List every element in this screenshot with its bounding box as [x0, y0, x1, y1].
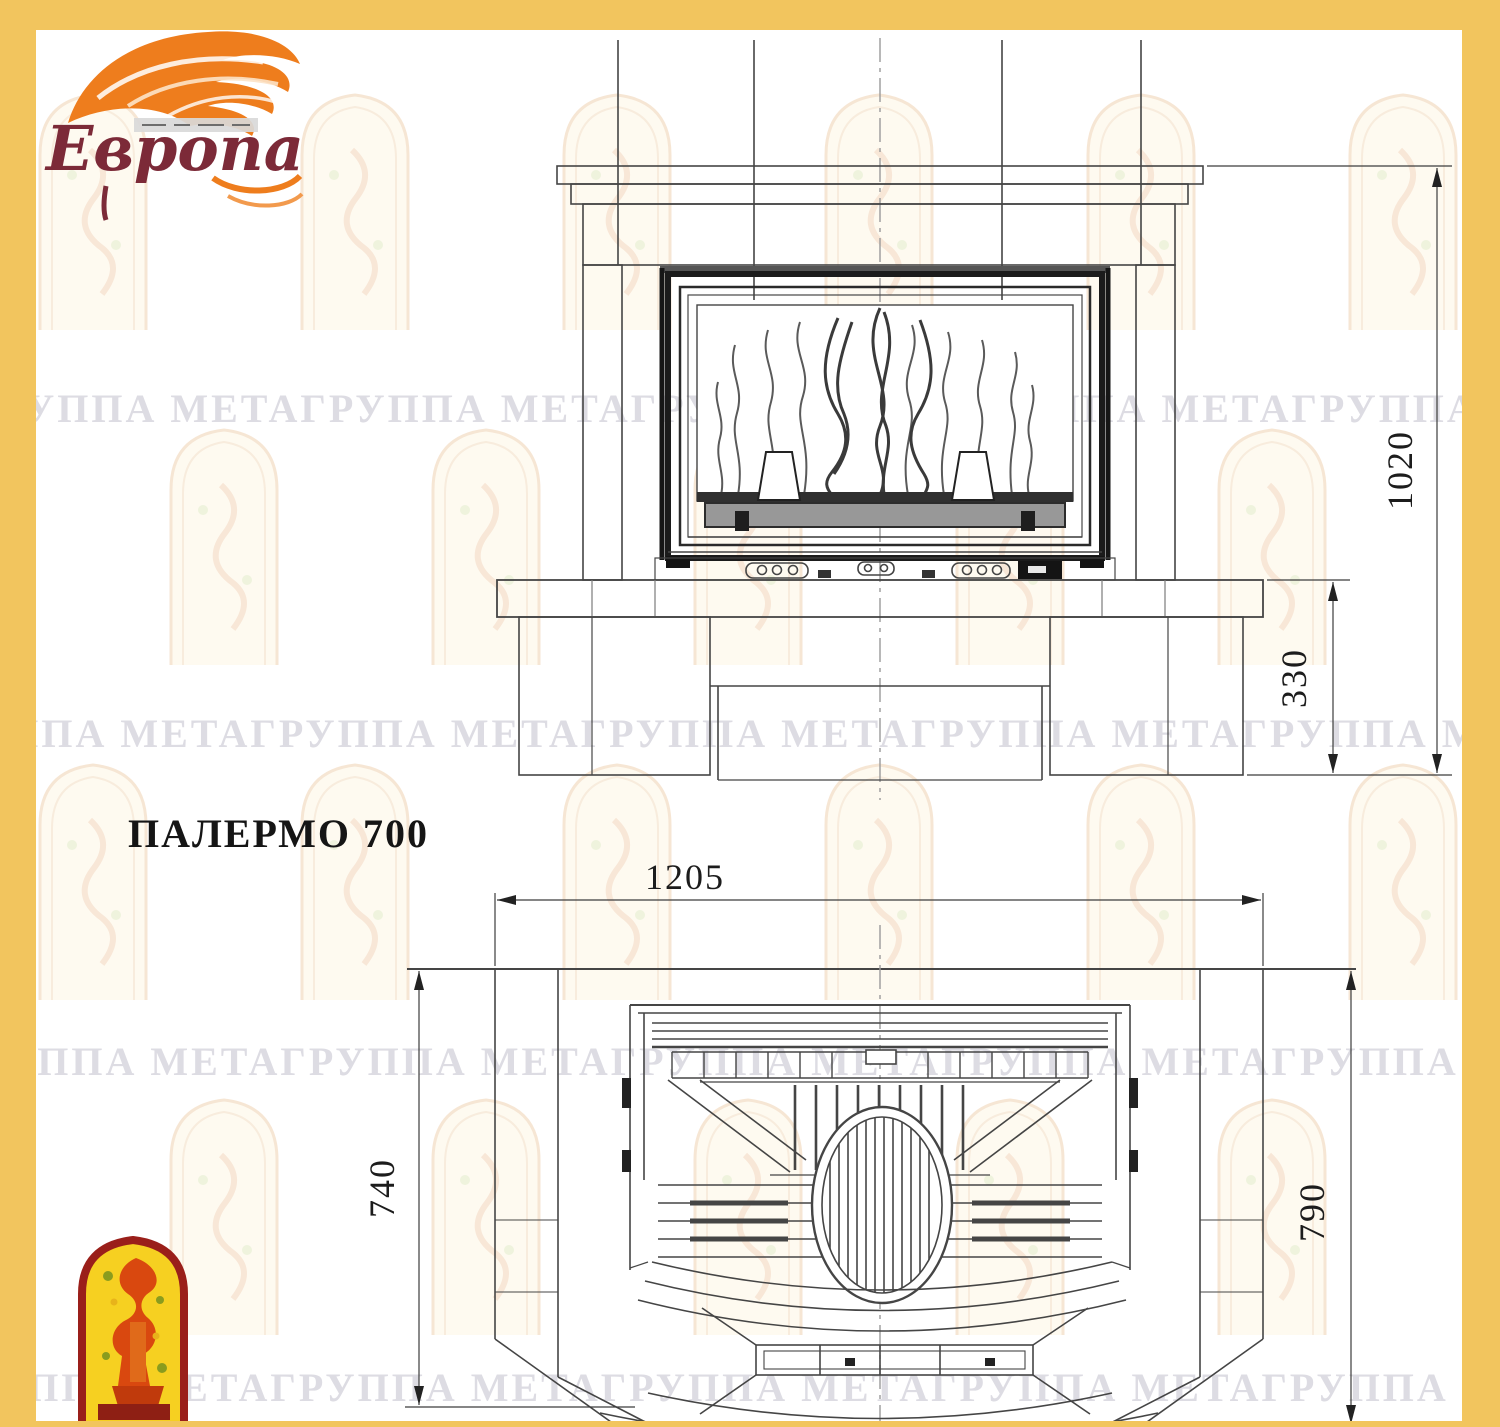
- front-elevation-view: 1020 330: [497, 38, 1452, 800]
- brand-descender: [104, 186, 106, 220]
- page-border-top: [0, 0, 1500, 30]
- dim-label-1020: 1020: [1380, 430, 1420, 510]
- dim-label-790: 790: [1292, 1182, 1332, 1242]
- dimension-1205: 1205: [495, 857, 1263, 966]
- dim-label-740: 740: [362, 1158, 402, 1218]
- base: [519, 617, 1243, 780]
- model-title: ПАЛЕРМО 700: [128, 810, 429, 857]
- page-border-bottom: [0, 1421, 1500, 1427]
- brand-name: Европа: [44, 112, 304, 185]
- dim-label-1205: 1205: [645, 857, 725, 897]
- page-border-right: [1462, 0, 1500, 1427]
- plan-fan: [812, 1107, 952, 1303]
- brand-logo: Европа: [38, 18, 318, 228]
- plan-comb-row: [672, 1050, 1088, 1078]
- firebox: [660, 266, 1110, 568]
- dim-label-330: 330: [1274, 648, 1314, 708]
- dimension-330: 330: [1267, 580, 1350, 773]
- drawing-sheet: ГРУППА МЕТАГРУППА МЕТАГРУППА МЕТАГРУППА …: [0, 0, 1500, 1427]
- page-border-left: [0, 0, 36, 1427]
- plan-view: 1205 740 790: [362, 857, 1356, 1427]
- control-strip: [655, 558, 1115, 580]
- ash-sill: [705, 503, 1065, 527]
- corner-badge: [78, 1236, 188, 1427]
- dimension-790: 790: [1292, 971, 1356, 1424]
- plan-front-band: [700, 1308, 1090, 1414]
